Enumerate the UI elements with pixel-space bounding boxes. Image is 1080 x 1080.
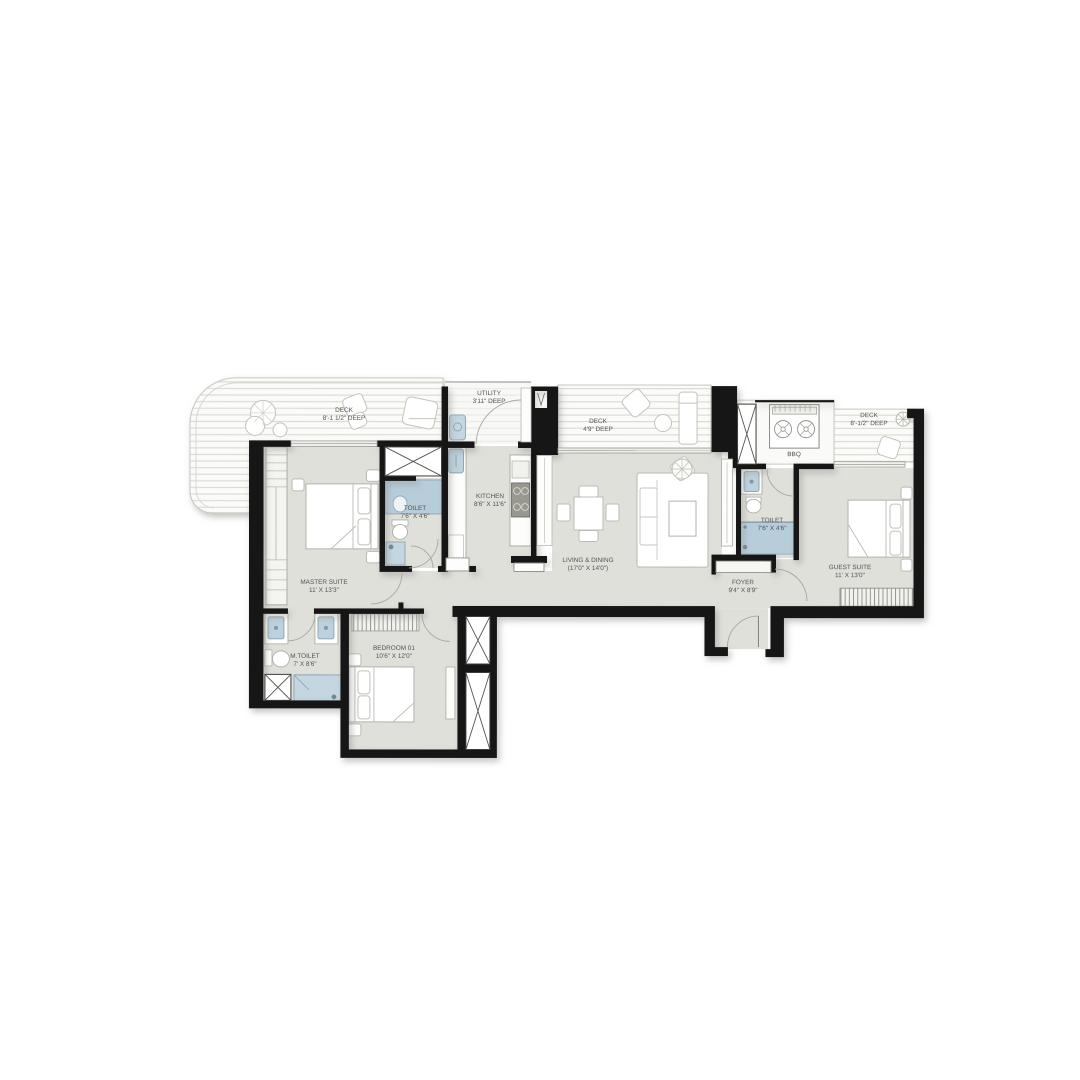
svg-text:3'11" DEEP: 3'11" DEEP bbox=[473, 398, 506, 405]
svg-text:UTILITY: UTILITY bbox=[477, 390, 502, 397]
svg-text:M.TOILET: M.TOILET bbox=[290, 653, 319, 660]
svg-text:KITCHEN: KITCHEN bbox=[476, 493, 504, 500]
svg-text:DECK: DECK bbox=[860, 412, 878, 419]
svg-text:8'-1 1/2" DEEP: 8'-1 1/2" DEEP bbox=[323, 415, 366, 422]
svg-text:MASTER SUITE: MASTER SUITE bbox=[300, 579, 347, 586]
svg-text:BEDROOM 01: BEDROOM 01 bbox=[373, 645, 415, 652]
svg-text:7'6" X 4'6": 7'6" X 4'6" bbox=[757, 525, 786, 532]
svg-text:4'9" DEEP: 4'9" DEEP bbox=[583, 426, 613, 433]
svg-text:10'6" X 12'0": 10'6" X 12'0" bbox=[376, 653, 412, 660]
svg-text:9'4" X 8'9": 9'4" X 8'9" bbox=[728, 587, 757, 594]
svg-text:7'6" X 4'6": 7'6" X 4'6" bbox=[401, 513, 430, 520]
svg-text:GUEST SUITE: GUEST SUITE bbox=[829, 564, 872, 571]
svg-text:11' X 13'3": 11' X 13'3" bbox=[309, 587, 339, 594]
svg-text:8'6" X 11'6": 8'6" X 11'6" bbox=[474, 501, 506, 508]
svg-text:DECK: DECK bbox=[589, 418, 607, 425]
svg-text:TOILET: TOILET bbox=[761, 517, 783, 524]
svg-text:TOILET: TOILET bbox=[404, 505, 426, 512]
svg-text:11' X 13'0": 11' X 13'0" bbox=[835, 572, 865, 579]
svg-text:8'-1/2" DEEP: 8'-1/2" DEEP bbox=[850, 420, 887, 427]
svg-text:BBQ: BBQ bbox=[787, 451, 801, 458]
svg-text:7' X 8'6": 7' X 8'6" bbox=[293, 661, 316, 668]
svg-text:LIVING & DINING: LIVING & DINING bbox=[562, 557, 613, 564]
svg-text:(17'0" X 14'0"): (17'0" X 14'0") bbox=[568, 565, 608, 572]
svg-text:FOYER: FOYER bbox=[732, 579, 754, 586]
svg-text:DECK: DECK bbox=[335, 407, 353, 414]
